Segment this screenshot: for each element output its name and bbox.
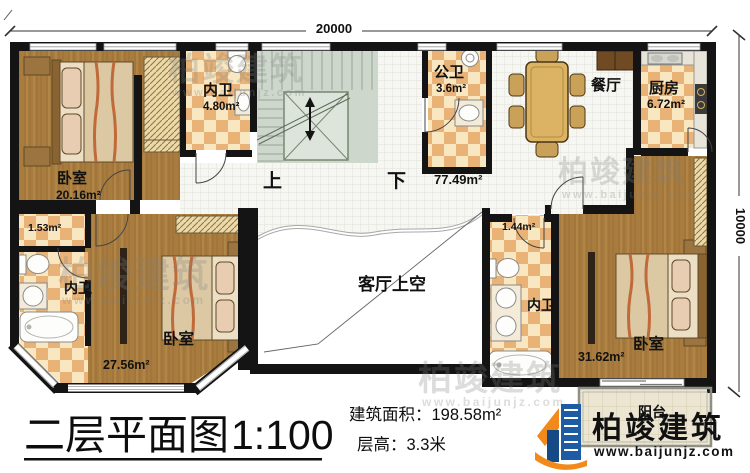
wardrobe-icon	[694, 158, 707, 246]
floor-height-label: 层高：	[357, 435, 407, 454]
label-bath-br: 内卫	[527, 297, 555, 313]
title-underline	[24, 458, 322, 461]
hall-nook-floor	[378, 51, 422, 163]
bed-icon	[616, 240, 707, 346]
floor-height: 层高：3.3米	[357, 435, 446, 454]
watermark-text: 柏竣建筑	[168, 51, 304, 87]
sink-icon	[491, 285, 521, 341]
watermark-site: www.baijunjz.com	[171, 87, 307, 99]
plan-title: 二层平面图1:100	[24, 412, 334, 458]
area-bedroom-br: 31.62m²	[578, 350, 625, 364]
floor-plan-page: 20000 10000 柏竣建筑 www.baijunjz.com 柏竣建筑 w…	[0, 0, 750, 473]
brand-name: 柏竣建筑	[592, 411, 724, 445]
toilet-icon	[489, 259, 519, 279]
wardrobe-icon	[176, 216, 248, 233]
label-bedroom-br: 卧室	[633, 334, 664, 353]
label-living-void: 客厅上空	[357, 274, 426, 294]
label-bath-tl: 内卫	[203, 81, 233, 99]
area-kitchen: 6.72m²	[647, 97, 685, 111]
building-area-value: 198.58m²	[432, 406, 502, 424]
brand-website: www.baijunjz.com	[593, 444, 735, 459]
area-bath-tl: 4.80m²	[203, 101, 240, 113]
wardrobe-icon	[144, 140, 180, 152]
toilet-icon	[19, 255, 49, 275]
bathtub-icon	[20, 312, 78, 342]
area-hall: 77.49m²	[434, 172, 483, 187]
dimension-right: 10000	[733, 208, 748, 244]
dimension-top: 20000	[316, 21, 352, 36]
watermark-site: www.baijunjz.com	[561, 189, 697, 201]
toilet-icon	[462, 50, 479, 67]
tv-cabinet-icon	[588, 252, 595, 344]
balcony-slider-window	[600, 379, 684, 386]
area-bedroom-tl: 20.16m²	[56, 188, 101, 202]
area-bedroom-bl: 27.56m²	[103, 358, 150, 372]
label-bedroom-bl: 卧室	[163, 329, 194, 348]
building-area-label: 建筑面积：	[349, 405, 432, 424]
window	[68, 385, 184, 392]
label-stairs-down: 下	[387, 171, 406, 192]
watermark-text: 柏竣建筑	[558, 155, 686, 189]
label-dining: 餐厅	[591, 76, 621, 94]
sink-icon	[19, 283, 47, 309]
floor-height-value: 3.3米	[407, 435, 446, 454]
area-closet-bl: 1.53m²	[28, 222, 62, 234]
plan-scale-text: 1:100	[231, 412, 334, 458]
building-area: 建筑面积：198.58m²	[349, 405, 502, 424]
label-kitchen: 厨房	[649, 79, 679, 97]
area-closet-br: 1.44m²	[502, 221, 536, 233]
label-stairs-up: 上	[263, 170, 282, 192]
plan-title-text: 二层平面图	[24, 412, 229, 458]
area-public-bath: 3.6m²	[436, 83, 466, 95]
label-bedroom-tl: 卧室	[57, 169, 87, 187]
floor-plan-canvas: 20000 10000 柏竣建筑 www.baijunjz.com 柏竣建筑 w…	[0, 0, 750, 473]
sink-icon	[455, 100, 483, 126]
watermark-text: 柏竣建筑	[418, 359, 562, 398]
label-bath-bl: 内卫	[64, 280, 92, 296]
label-public-bath: 公卫	[434, 64, 464, 81]
